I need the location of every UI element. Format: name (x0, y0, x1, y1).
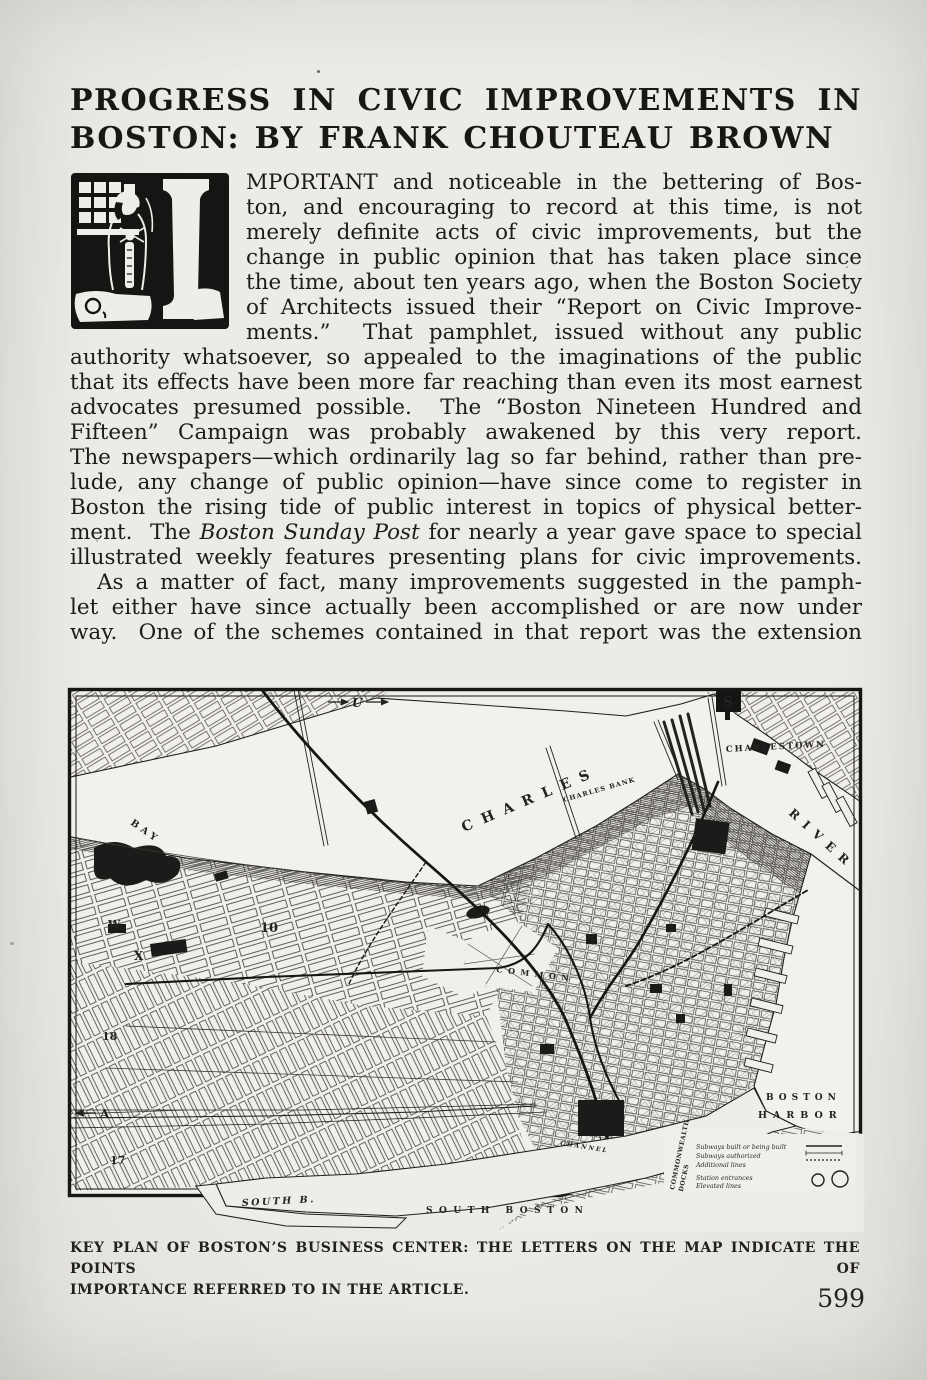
legend-line: Subways authorized (696, 1153, 761, 1160)
text-line: lude, any change of public opinion—have … (70, 470, 862, 495)
legend-line: Additional lines (695, 1162, 747, 1169)
figure-caption: KEY PLAN OF BOSTON’S BUSINESS CENTER: TH… (70, 1238, 860, 1301)
key-point-18: 18 (102, 1030, 118, 1043)
text-line: illustrated weekly features presenting p… (70, 545, 862, 570)
dust-speck (846, 266, 848, 268)
boston-key-plan-figure: Subways built or being built Subways aut… (66, 686, 864, 1234)
scanned-magazine-page: PROGRESS IN CIVIC IMPROVEMENTS IN BOSTON… (0, 0, 927, 1380)
boston-harbor-label-1: BOSTON (766, 1093, 841, 1103)
title-line-2: BOSTON: BY FRANK CHOUTEAU BROWN (70, 120, 862, 158)
article-title: PROGRESS IN CIVIC IMPROVEMENTS IN BOSTON… (70, 82, 862, 158)
drop-cap-woodcut-initial (70, 172, 230, 330)
boston-key-plan-map: Subways built or being built Subways aut… (66, 686, 864, 1234)
key-point-x: X (134, 949, 144, 963)
text-line: advocates presumed possible. The “Boston… (70, 395, 862, 420)
text-line: authority whatsoever, so appealed to the… (70, 345, 862, 370)
legend-panel (664, 1134, 854, 1190)
key-point-10: 10 (260, 921, 278, 936)
south-boston-label: SOUTH BOSTON (426, 1206, 589, 1216)
dust-speck (10, 942, 14, 945)
dust-speck (317, 70, 320, 73)
key-point-17: 17 (110, 1154, 125, 1167)
text-line: As a matter of fact, many improvements s… (70, 570, 862, 595)
text-line: way. One of the schemes contained in tha… (70, 620, 862, 645)
text-segment: ment. The (70, 520, 200, 545)
key-point-a: A (99, 1107, 110, 1121)
text-line: that its effects have been more far reac… (70, 370, 862, 395)
legend-line: Elevated lines (695, 1183, 742, 1190)
legend-line: Station entrances (696, 1175, 753, 1182)
caption-line-1: KEY PLAN OF BOSTON’S BUSINESS CENTER: TH… (70, 1238, 860, 1280)
text-line: Boston the rising tide of public interes… (70, 495, 862, 520)
paragraph-2: As a matter of fact, many improvements s… (70, 570, 862, 645)
text-segment: for nearly a year gave space to special (420, 520, 862, 545)
page-number: 599 (817, 1284, 865, 1313)
dust-speck (96, 540, 98, 542)
caption-line-2: IMPORTANCE REFERRED TO IN THE ARTICLE. (70, 1280, 860, 1301)
boston-harbor-label-2: HARBOR (758, 1110, 843, 1121)
text-line: The newspapers—which ordinarily lag so f… (70, 445, 862, 470)
text-line: let either have since actually been acco… (70, 595, 862, 620)
s-label: S (723, 693, 734, 711)
key-point-w: W (107, 918, 121, 931)
title-line-1: PROGRESS IN CIVIC IMPROVEMENTS IN (70, 82, 862, 120)
legend-line: Subways built or being built (696, 1144, 787, 1151)
text-line-with-italic: ment. The Boston Sunday Post for nearly … (70, 520, 862, 545)
u-label: U (352, 696, 364, 710)
italic-publication-name: Boston Sunday Post (200, 520, 420, 545)
text-line: Fifteen” Campaign was probably awakened … (70, 420, 862, 445)
article-body: MPORTANT and noticeable in the bettering… (70, 170, 862, 645)
